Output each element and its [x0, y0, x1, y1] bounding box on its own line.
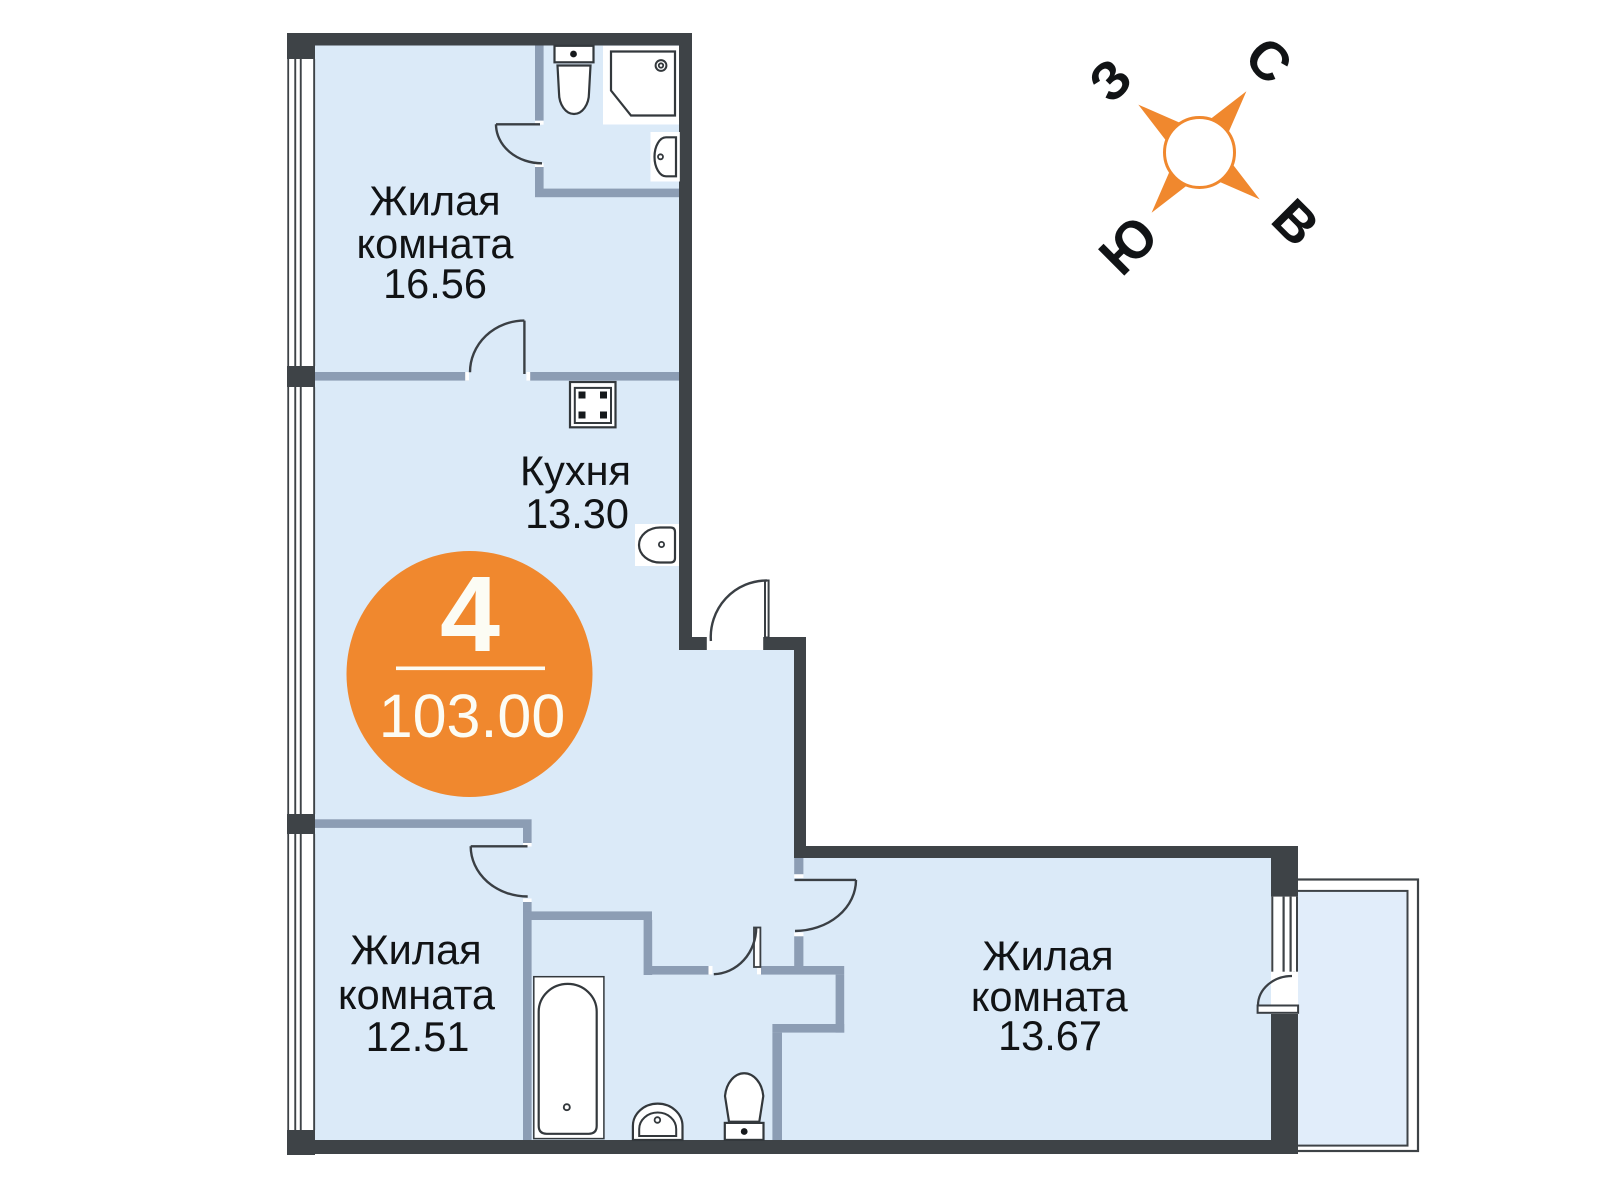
svg-text:16.56: 16.56 [383, 260, 487, 307]
svg-text:13.67: 13.67 [998, 1012, 1102, 1059]
svg-text:12.51: 12.51 [366, 1013, 470, 1060]
svg-text:13.30: 13.30 [525, 490, 629, 537]
svg-text:комната: комната [338, 971, 496, 1018]
svg-text:Жилая: Жилая [369, 177, 500, 224]
svg-text:103.00: 103.00 [379, 682, 566, 750]
svg-text:4: 4 [440, 553, 500, 674]
svg-text:Жилая: Жилая [982, 932, 1113, 979]
svg-text:Кухня: Кухня [520, 447, 631, 494]
svg-text:Жилая: Жилая [350, 926, 481, 973]
